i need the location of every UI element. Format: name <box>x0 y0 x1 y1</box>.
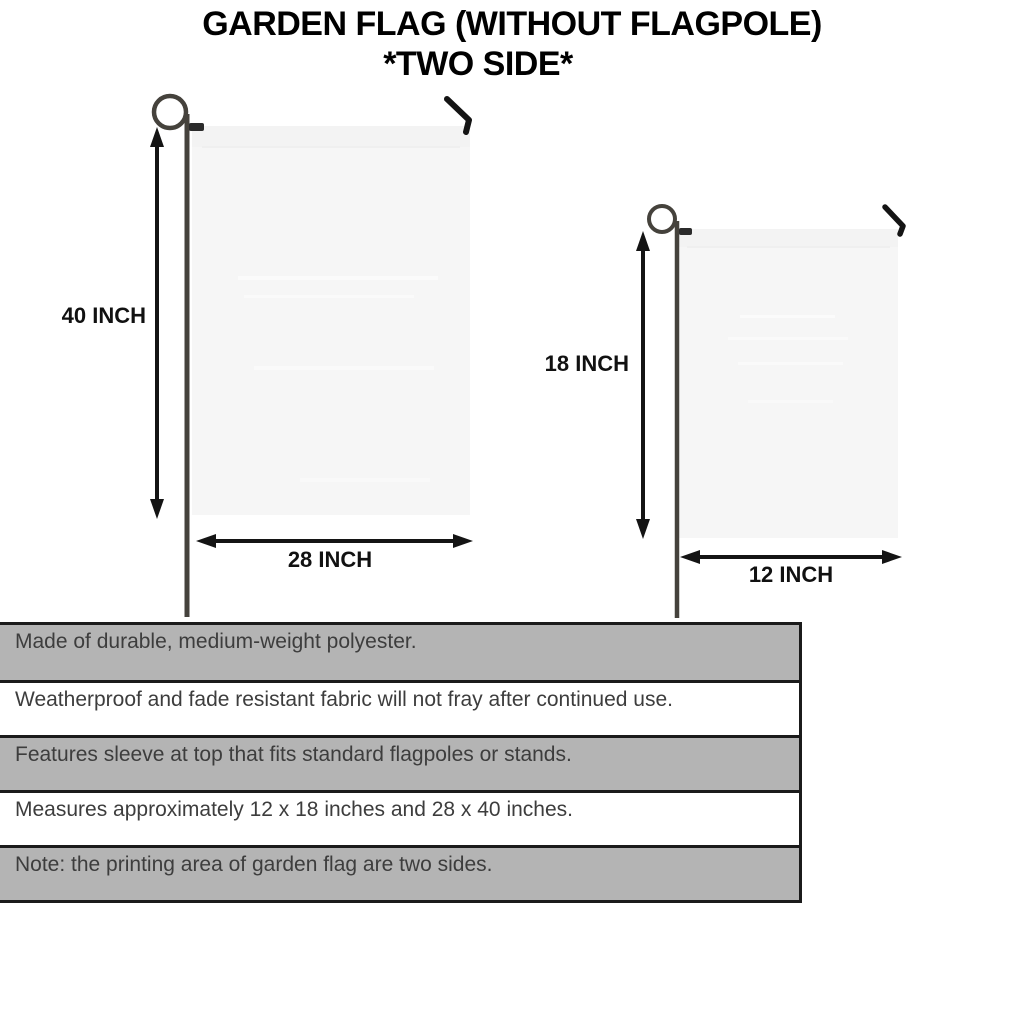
large-flag-fabric <box>192 126 470 515</box>
large-flag-pole-loop <box>154 96 186 128</box>
feature-row: Features sleeve at top that fits standar… <box>0 735 799 790</box>
large-flag-width-arrow <box>196 534 473 548</box>
small-flag-fabric <box>679 229 898 538</box>
large-flag-width-label: 28 INCH <box>230 547 430 573</box>
feature-row: Note: the printing area of garden flag a… <box>0 845 799 900</box>
large-flag-height-arrow <box>150 127 164 519</box>
garden-flag-infographic: GARDEN FLAG (WITHOUT FLAGPOLE) *TWO SIDE… <box>0 0 1024 1024</box>
large-flag-height-label: 40 INCH <box>0 303 146 329</box>
feature-row: Weatherproof and fade resistant fabric w… <box>0 680 799 735</box>
large-flag-graphic <box>150 96 473 617</box>
feature-row: Measures approximately 12 x 18 inches an… <box>0 790 799 845</box>
small-flag-height-label: 18 INCH <box>480 351 629 377</box>
small-flag-height-arrow <box>636 231 650 539</box>
small-flag-width-label: 12 INCH <box>691 562 891 588</box>
small-flag-graphic <box>636 206 903 618</box>
small-flag-pole-loop <box>649 206 675 232</box>
large-flag-clip <box>189 123 204 131</box>
features-table: Made of durable, medium-weight polyester… <box>0 622 802 903</box>
feature-row: Made of durable, medium-weight polyester… <box>0 625 799 680</box>
small-flag-clip <box>679 228 692 235</box>
